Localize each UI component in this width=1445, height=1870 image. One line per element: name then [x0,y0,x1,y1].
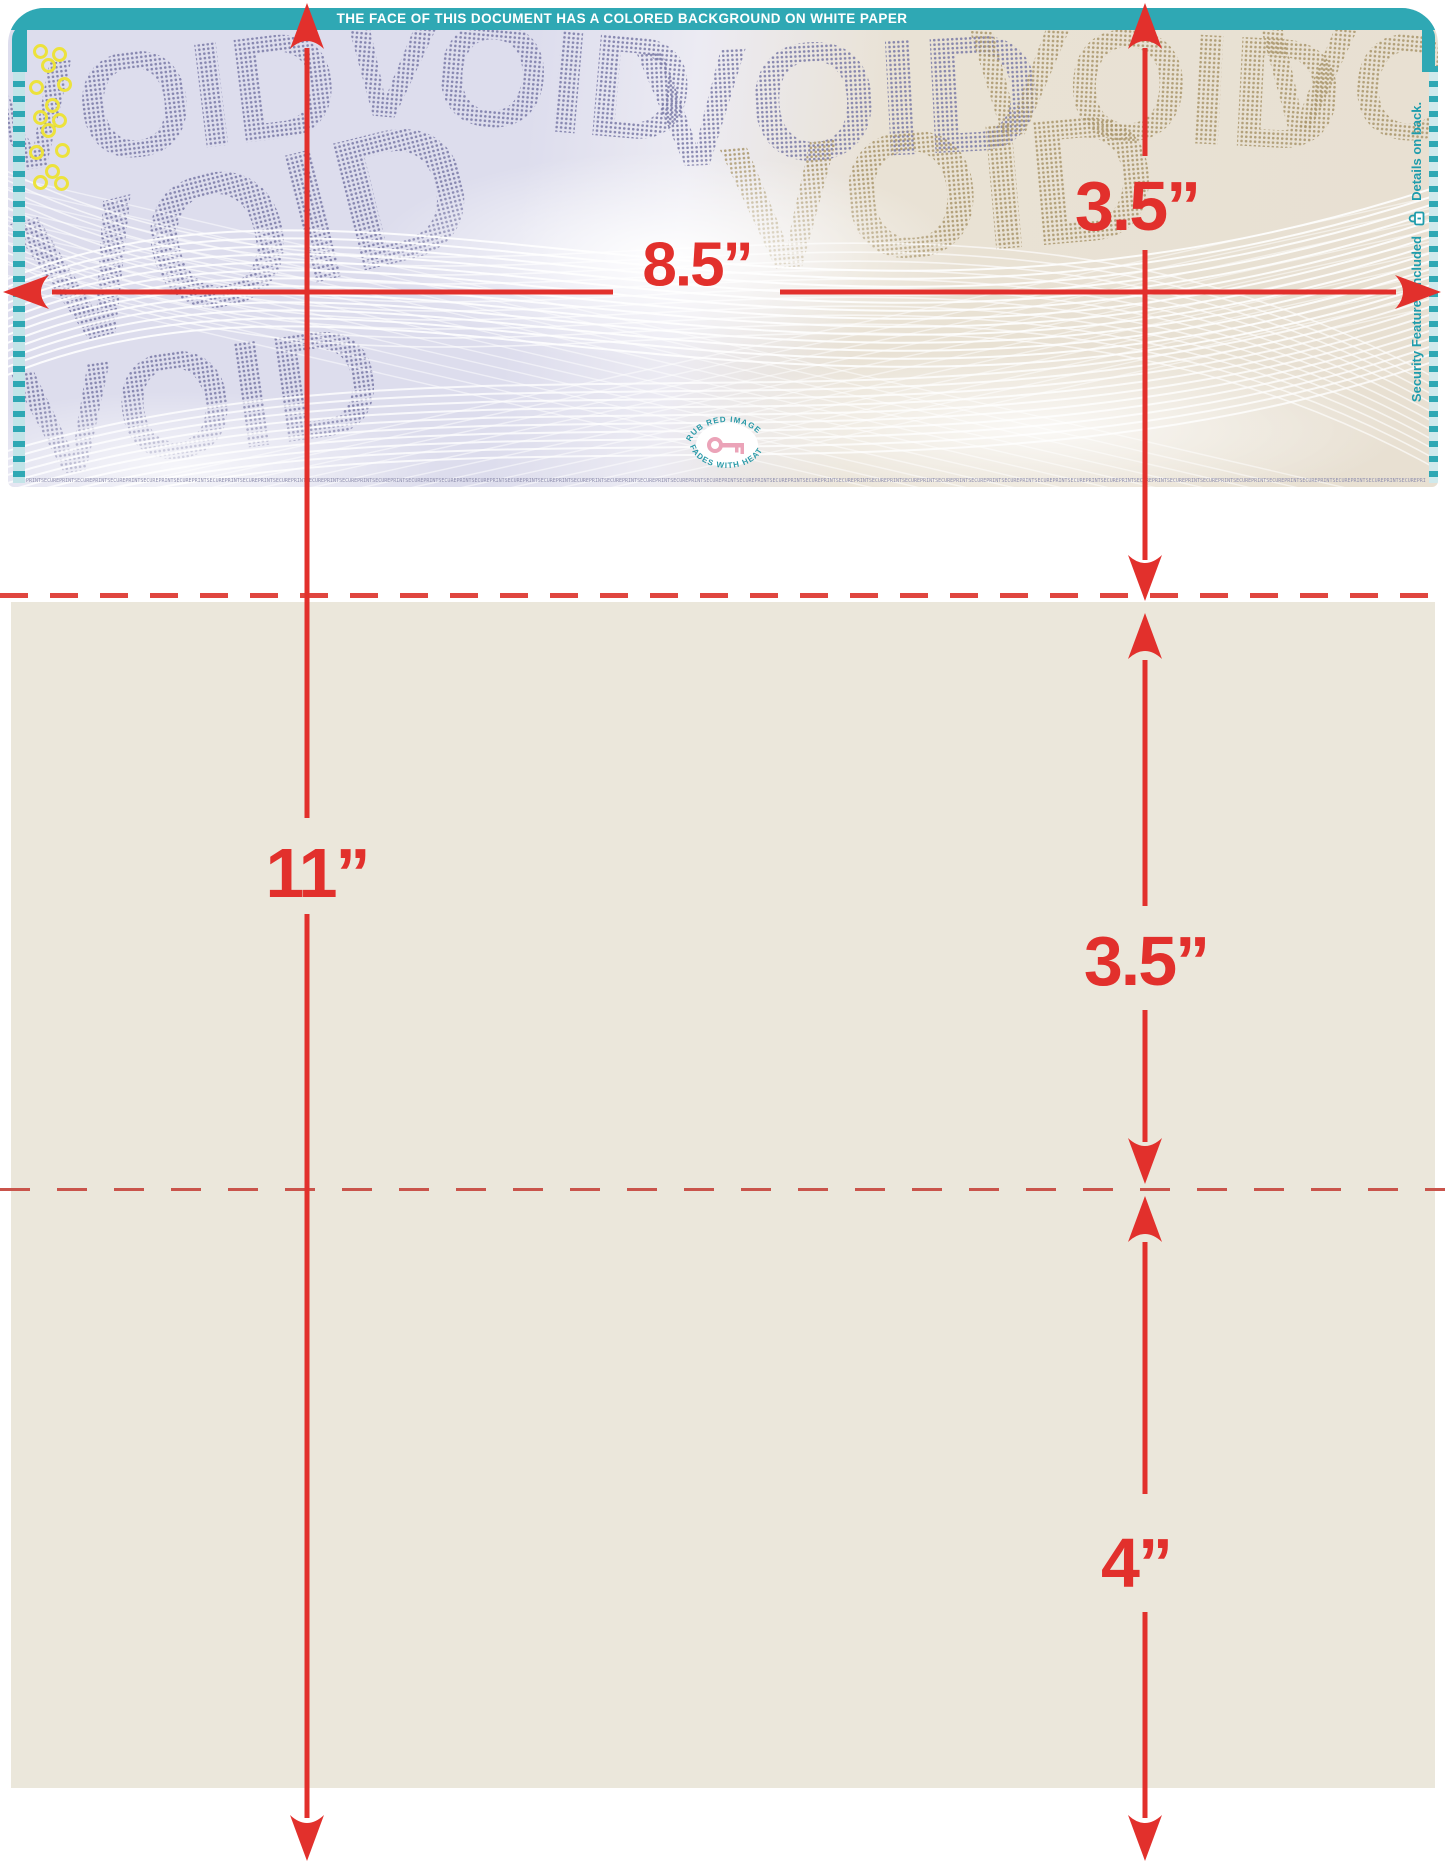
check-height-dimension-label: 3.5” [1075,166,1199,246]
top-left-corner [12,24,27,72]
perforation-line-1 [0,593,1445,598]
lock-icon [1408,211,1425,226]
arrow-down-icon [1128,1815,1162,1861]
middle-section-dimension-label: 3.5” [1084,921,1208,1001]
security-edge-note: Security Features Included Details on ba… [1406,72,1426,432]
arrow-down-icon [290,1815,324,1861]
details-on-back-text: Details on back. [1409,102,1424,201]
security-features-text: Security Features Included [1409,236,1424,402]
width-dimension-label: 8.5” [642,230,751,301]
banner-text: THE FACE OF THIS DOCUMENT HAS A COLORED … [337,11,908,26]
right-perforation-strip [1429,66,1438,483]
bottom-microtext: PRINTSECUREPRINTSECUREPRINTSECUREPRINTSE… [26,478,1426,486]
check-paper-dimension-diagram: VOID VOID VOID VOID VOID VOID VOID VOID [0,0,1445,1870]
heat-seal: RUB RED IMAGE FADES WITH HEAT [679,408,775,482]
top-right-corner [1422,24,1435,72]
lower-sheet-area [11,602,1435,1788]
check-top-banner: THE FACE OF THIS DOCUMENT HAS A COLORED … [8,8,1438,30]
left-perforation-strip [13,66,25,483]
bottom-section-dimension-label: 4” [1101,1523,1171,1603]
perforation-line-2 [0,1188,1445,1191]
page-height-dimension-label: 11” [266,833,369,913]
